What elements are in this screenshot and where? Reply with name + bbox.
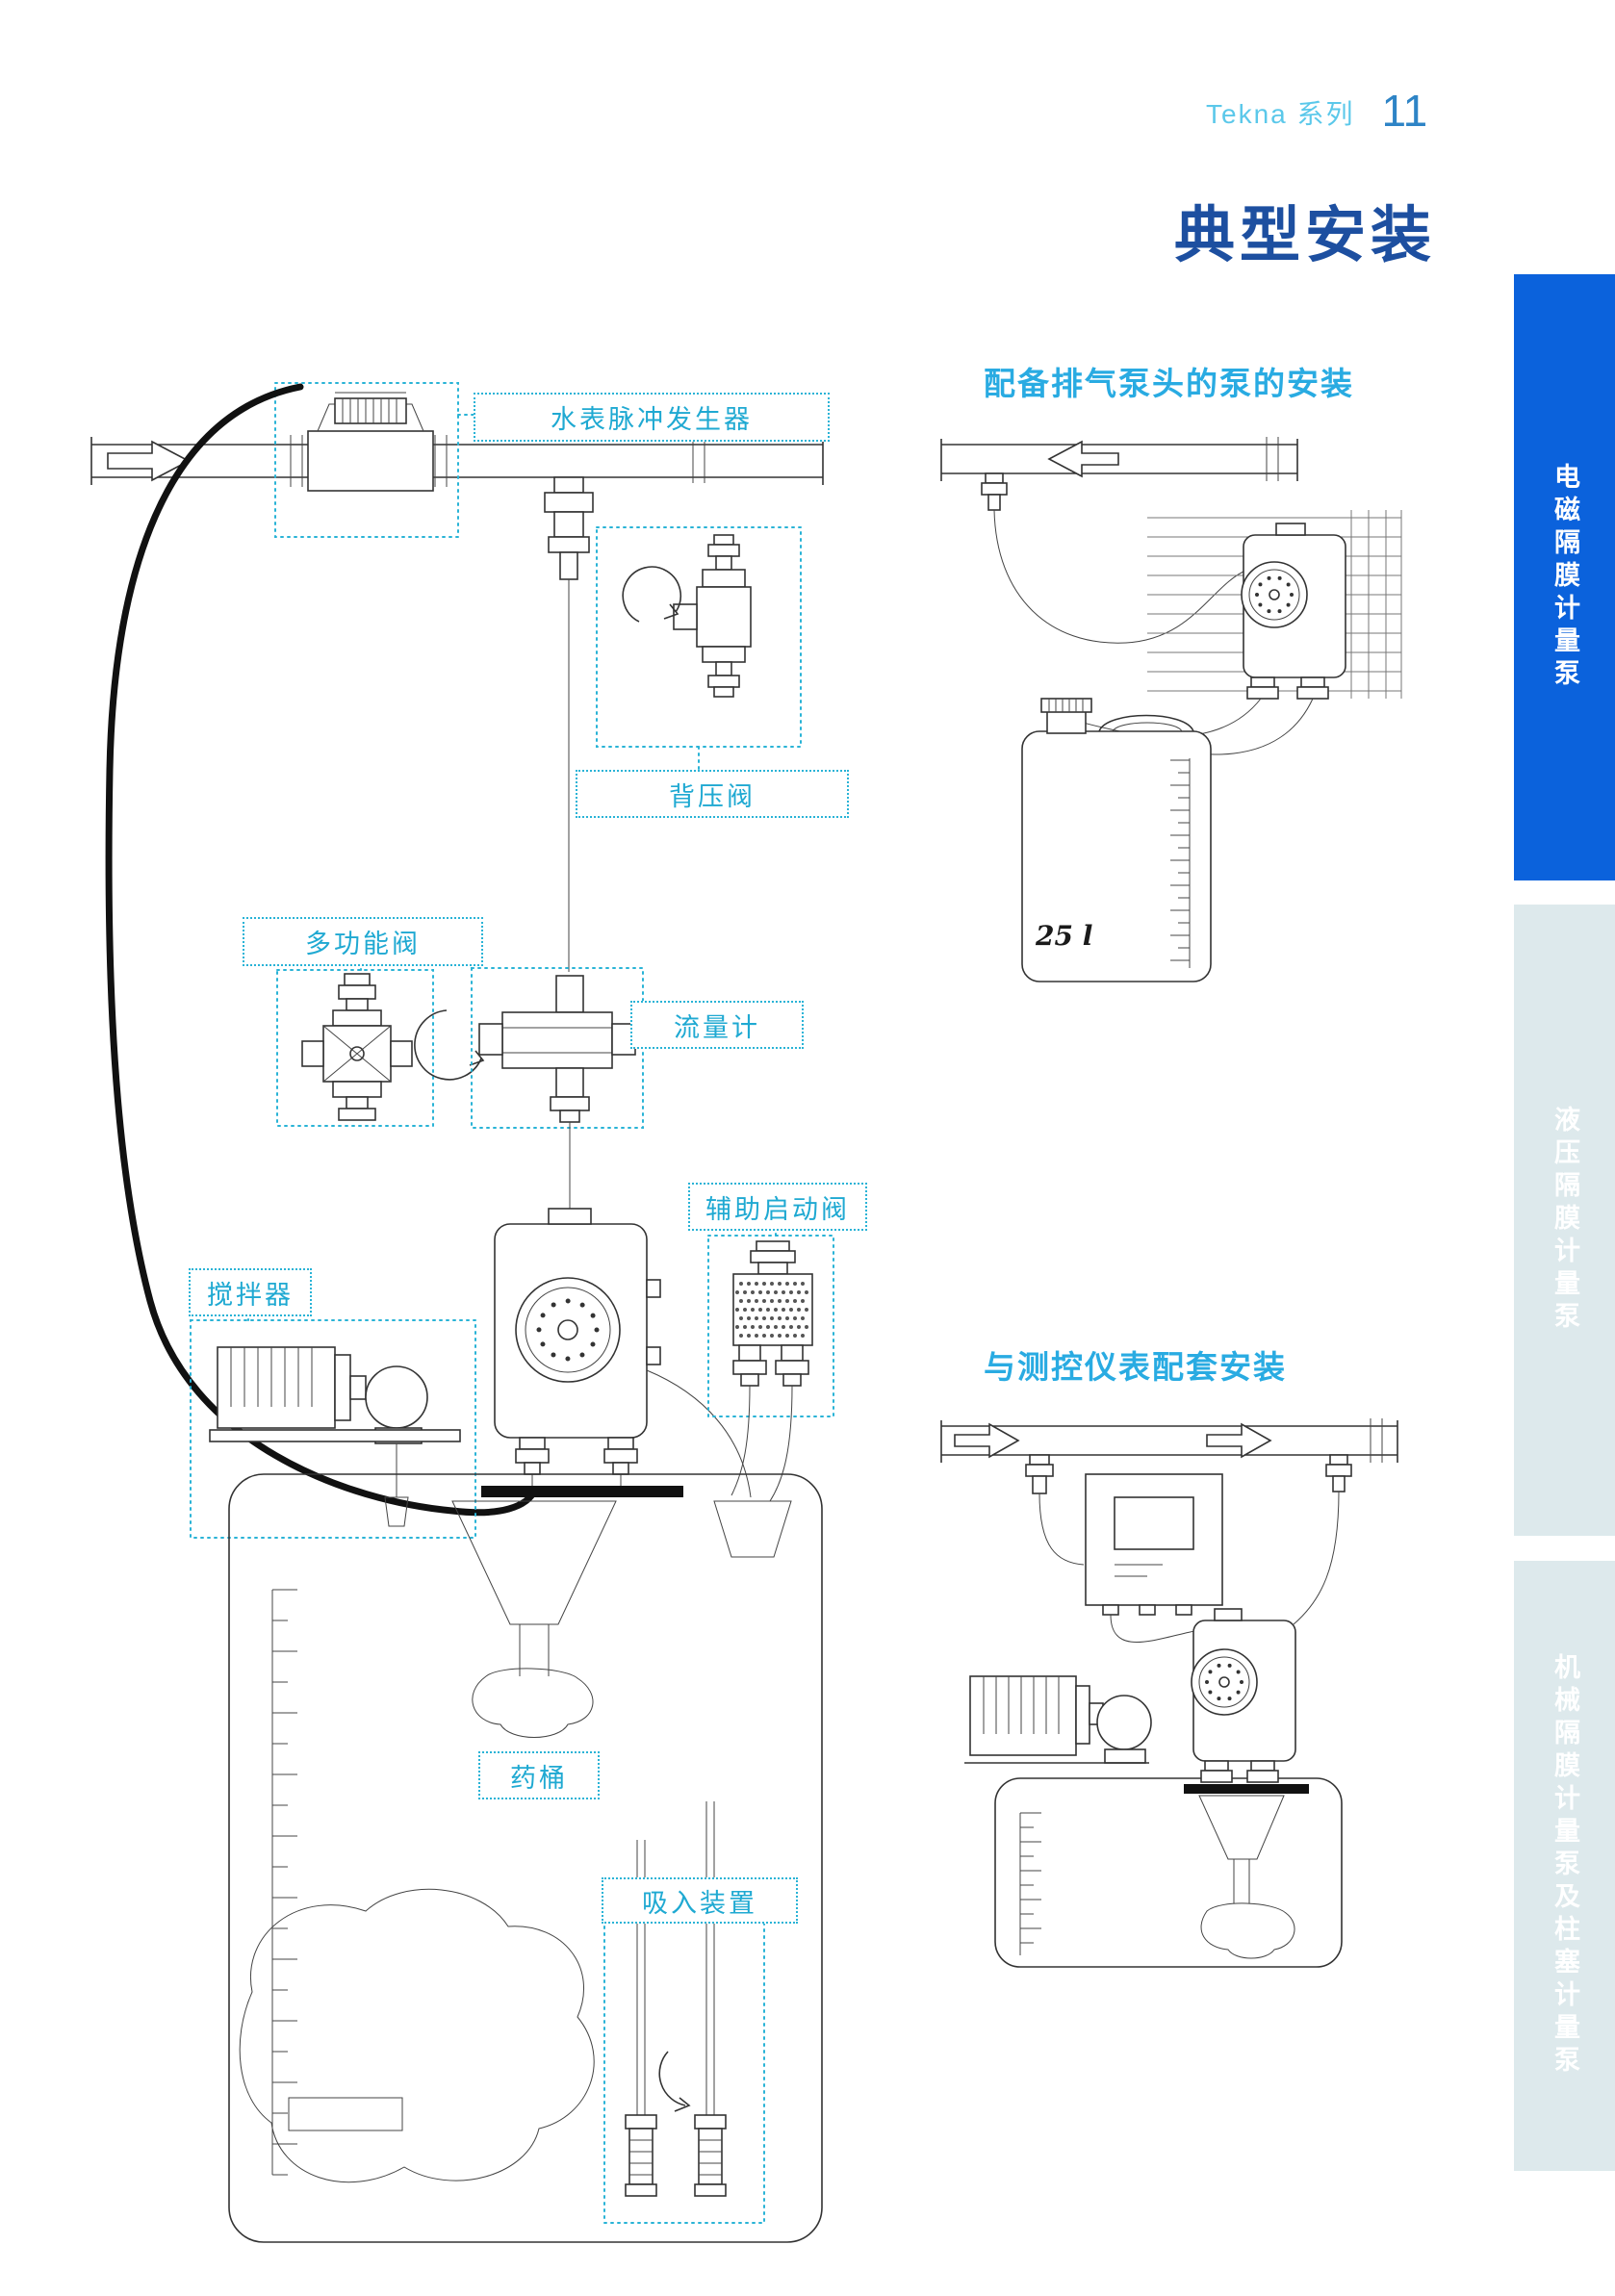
sidebar-tab-label: 机械隔膜计量泵及柱塞计量泵 <box>1551 1653 1577 2079</box>
label-multifunction-valve: 多功能阀 <box>243 917 483 966</box>
flow-direction-arrow-icon <box>1207 1424 1270 1457</box>
label-mixer: 搅拌器 <box>189 1268 312 1316</box>
installation-diagrams <box>0 0 1615 2296</box>
controller-figure <box>1086 1474 1222 1643</box>
injection-tee-figure <box>545 477 593 972</box>
label-water-meter: 水表脉冲发生器 <box>474 393 830 442</box>
instrument-motor-figure <box>964 1676 1151 1763</box>
flow-meter-figure <box>472 968 643 1209</box>
sidebar-tab-mechanical-diaphragm-plunger-pump[interactable]: 机械隔膜计量泵及柱塞计量泵 <box>1514 1561 1615 2171</box>
suction-device-figure <box>604 1801 764 2223</box>
instrument-pump-figure <box>1184 1609 1309 1794</box>
aux-priming-valve-figure <box>708 1227 833 1501</box>
flow-direction-arrow-icon <box>955 1424 1018 1457</box>
multifunction-valve-figure <box>277 962 483 1126</box>
catalog-page: Tekna 系列 11 典型安装 配备排气泵头的泵的安装 与测控仪表配套安装 水… <box>0 0 1615 2296</box>
sidebar-tab-solenoid-diaphragm-pump[interactable]: 电磁隔膜计量泵 <box>1514 274 1615 880</box>
label-aux-priming-valve: 辅助启动阀 <box>688 1183 867 1231</box>
sidebar-tab-hydraulic-diaphragm-pump[interactable]: 液压隔膜计量泵 <box>1514 905 1615 1536</box>
label-back-pressure-valve: 背压阀 <box>576 770 849 818</box>
chemical-tank-figure <box>229 1474 822 2242</box>
sidebar-tab-label: 电磁隔膜计量泵 <box>1551 463 1577 692</box>
jerrycan-volume-label: 25 l <box>1036 920 1092 952</box>
instrument-pipe <box>941 1418 1397 1463</box>
label-chemical-tank: 药桶 <box>478 1751 600 1799</box>
rotation-arrow-icon <box>623 567 680 622</box>
flow-direction-arrow-icon <box>1049 442 1118 476</box>
sidebar-tab-label: 液压隔膜计量泵 <box>1551 1106 1577 1335</box>
label-flow-meter: 流量计 <box>630 1001 804 1049</box>
instrument-tank-figure <box>995 1778 1342 1967</box>
probe-figure <box>1026 1455 1084 1565</box>
label-suction-device: 吸入装置 <box>602 1877 798 1924</box>
water-meter-figure <box>275 383 474 537</box>
degassing-injection-valve <box>982 473 1247 643</box>
mixer-figure <box>191 1313 475 1538</box>
dosing-pump-figure <box>481 1209 751 1497</box>
instrument-injection-valve <box>1294 1455 1351 1624</box>
back-pressure-valve-figure <box>597 527 801 770</box>
rotation-arrow-icon <box>659 2052 685 2105</box>
